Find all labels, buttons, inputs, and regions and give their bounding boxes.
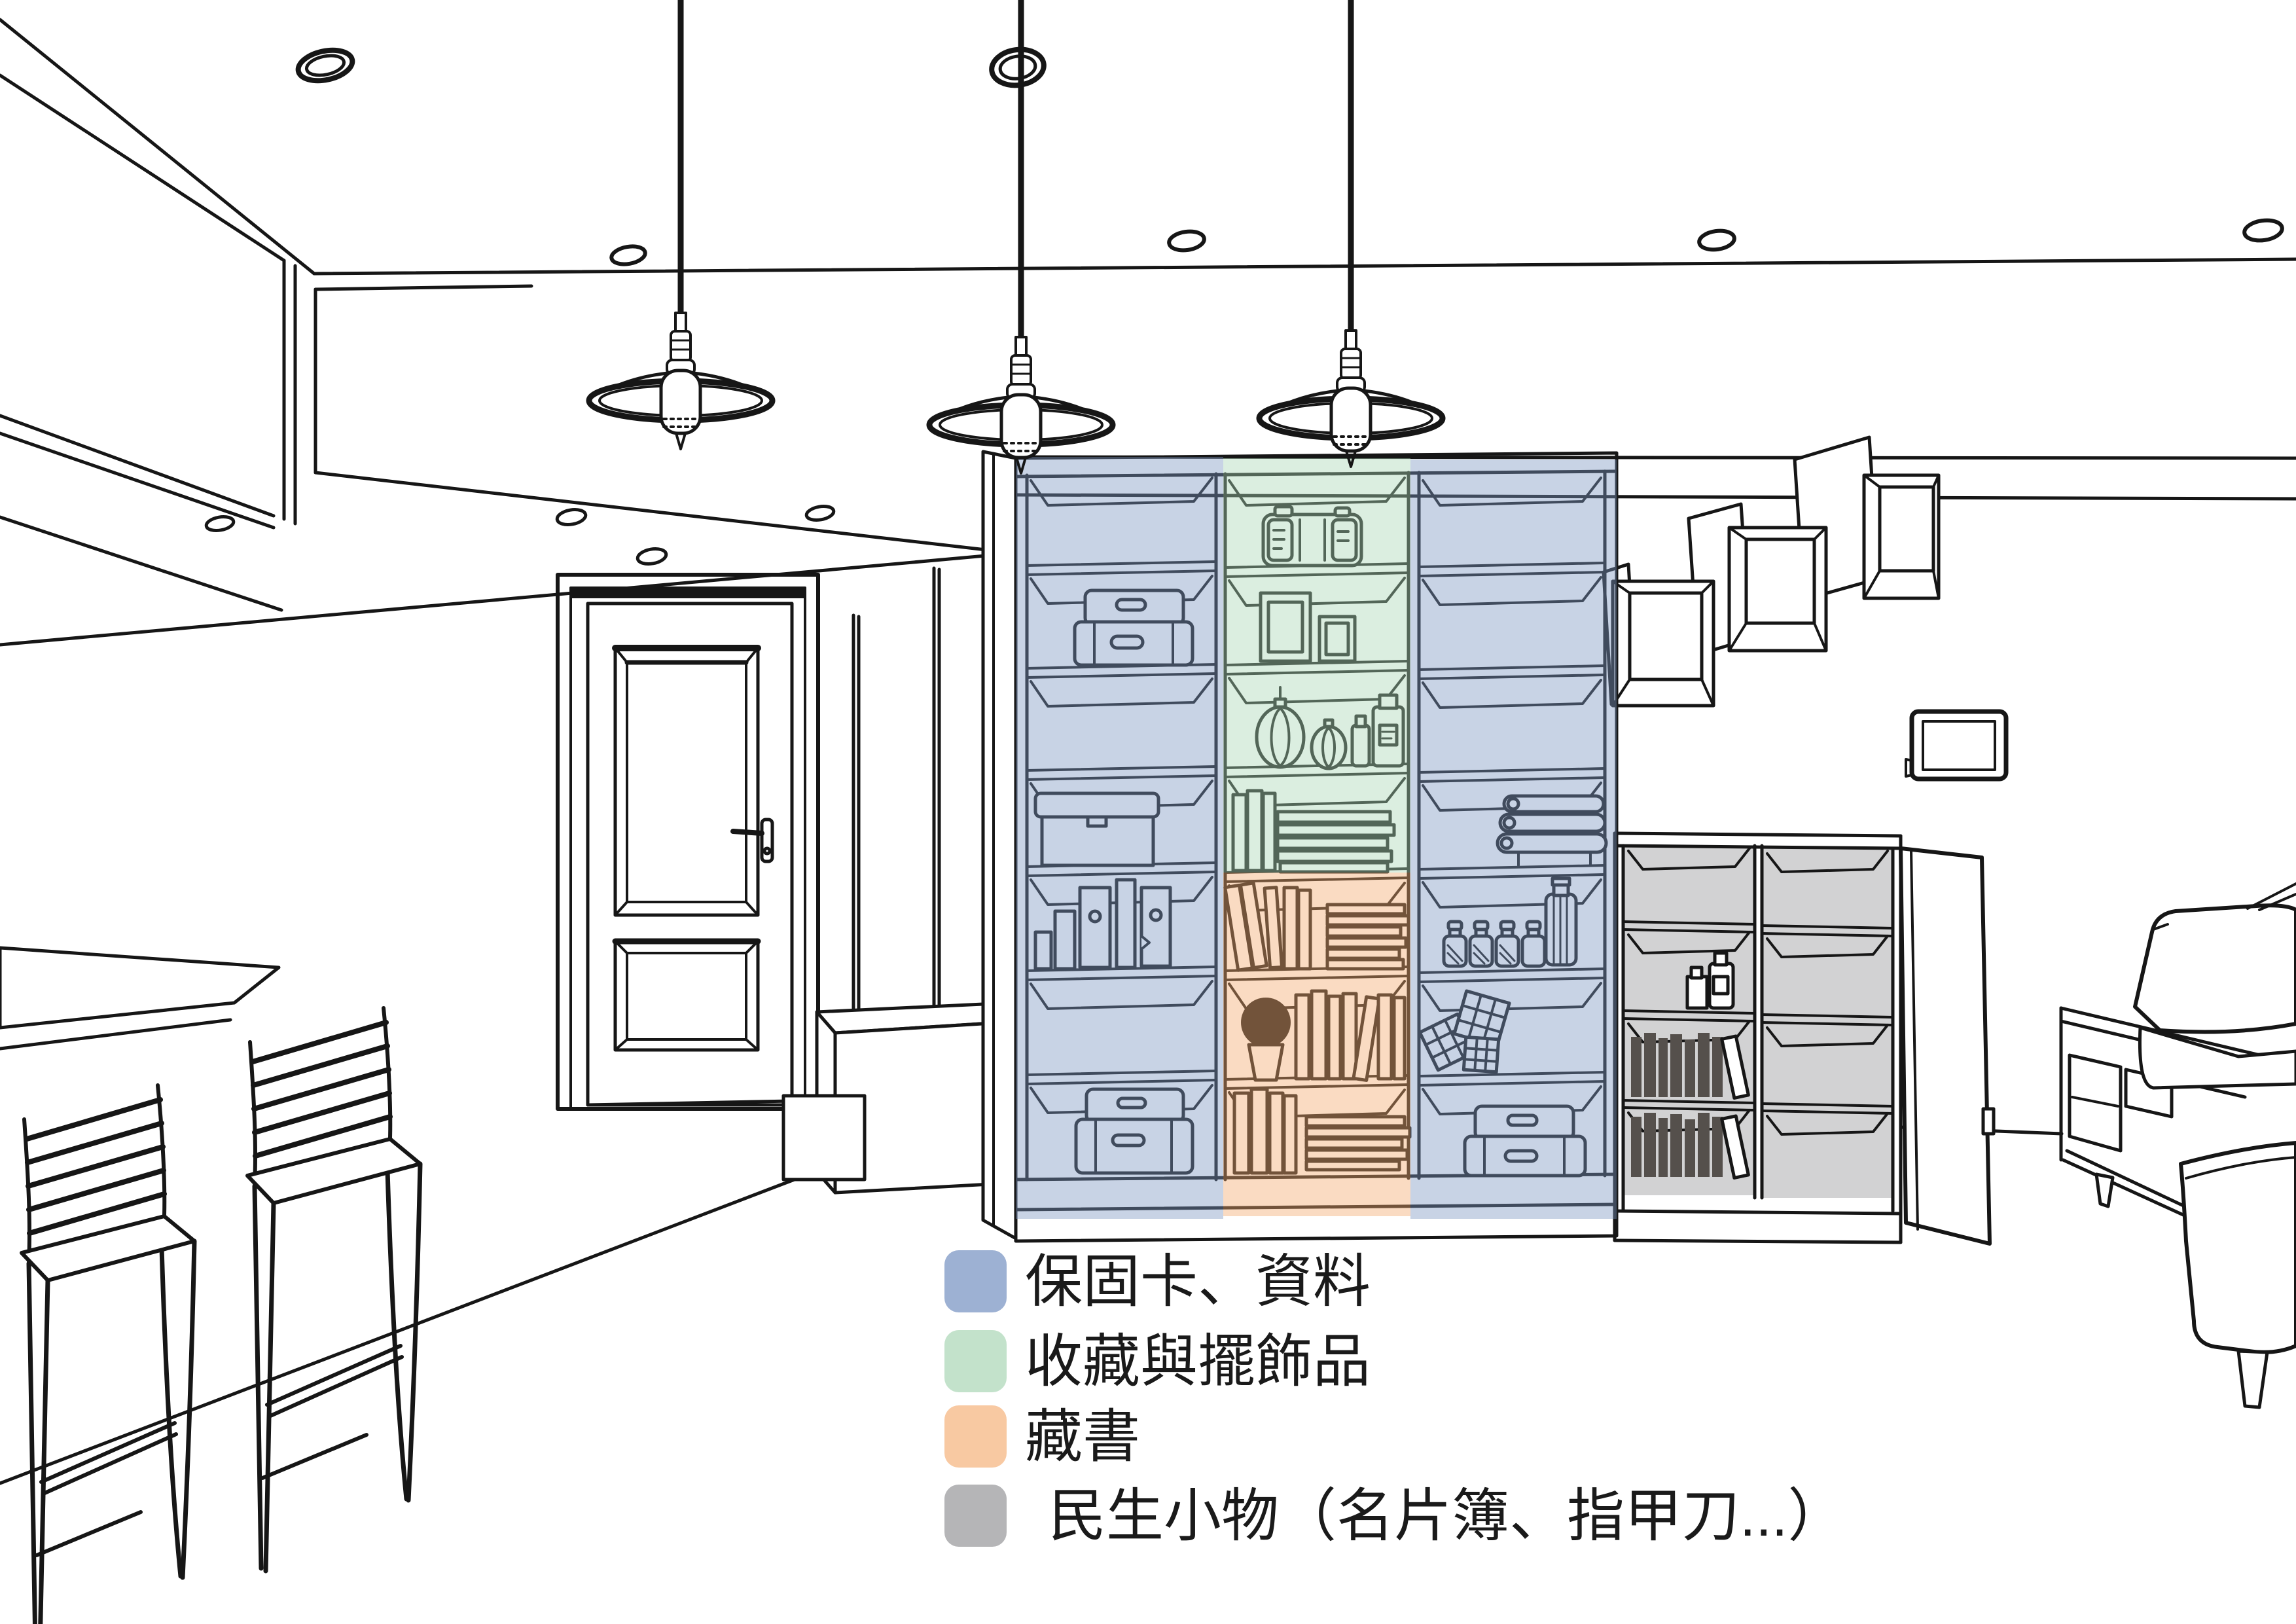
pendant-lamp bbox=[1259, 0, 1443, 467]
sofa bbox=[2135, 884, 2296, 1407]
storage-cabinet bbox=[1615, 833, 1994, 1244]
legend-label: 收藏與擺飾品 bbox=[1025, 1329, 1371, 1394]
zone-orange-center bbox=[1223, 873, 1410, 1216]
ceiling-corner-line bbox=[0, 20, 314, 274]
pendant-lamp bbox=[589, 0, 772, 449]
bar-counter bbox=[0, 948, 279, 1049]
legend-label: 民生小物（名片簿、指甲刀...） bbox=[1049, 1483, 1845, 1548]
step-box bbox=[783, 1096, 865, 1180]
legend-swatch-blue bbox=[944, 1250, 1007, 1312]
door-upper-panel bbox=[615, 648, 758, 915]
door-head-trim bbox=[571, 588, 805, 598]
sofa-armrest bbox=[2140, 1028, 2296, 1088]
scene-rendering: 保固卡、資料 收藏與擺飾品 藏書 民生小物（名片簿、指甲刀...） bbox=[0, 0, 2296, 1624]
bar-stool-right bbox=[247, 1008, 420, 1571]
tv-cabinet-leg bbox=[2096, 1174, 2113, 1206]
interior-door bbox=[558, 575, 818, 1109]
legend-swatch-green bbox=[944, 1330, 1007, 1392]
zone-blue-left bbox=[1016, 457, 1223, 1219]
stair-box bbox=[1613, 581, 1713, 706]
zone-blue-right bbox=[1410, 460, 1617, 1219]
interior-storage-plan-rendering: 保固卡、資料 收藏與擺飾品 藏書 民生小物（名片簿、指甲刀...） bbox=[0, 0, 2296, 1624]
legend-swatch-orange bbox=[944, 1405, 1007, 1468]
legend-item-book-collection: 藏書 bbox=[944, 1404, 1140, 1469]
sofa-back-cushion bbox=[2135, 905, 2296, 1032]
legend-item-collectibles-decor: 收藏與擺飾品 bbox=[944, 1329, 1371, 1394]
sofa-leg bbox=[2238, 1351, 2267, 1407]
legend-item-daily-small-items: 民生小物（名片簿、指甲刀...） bbox=[944, 1483, 1845, 1548]
downlight-icon bbox=[610, 218, 2284, 266]
stool-back-slats bbox=[253, 1022, 390, 1156]
pendant-lamp bbox=[929, 0, 1113, 473]
zone-green-center bbox=[1223, 458, 1410, 873]
legend-item-warranty-docs: 保固卡、資料 bbox=[944, 1249, 1371, 1314]
cabinet-books-row bbox=[1631, 1033, 1723, 1097]
bookshelf-open-door bbox=[983, 452, 1016, 1238]
cabinet-open-door bbox=[1901, 848, 1994, 1244]
kitchen-upper-cabinets bbox=[0, 75, 1014, 610]
stair-box bbox=[1864, 475, 1939, 598]
stair-display-boxes bbox=[1604, 437, 1939, 706]
legend-label: 藏書 bbox=[1025, 1404, 1140, 1469]
cabinet-door-handle bbox=[1983, 1109, 1994, 1134]
legend-label: 保固卡、資料 bbox=[1025, 1249, 1371, 1314]
stair-box bbox=[1729, 528, 1826, 651]
zone-overlays bbox=[1016, 457, 1617, 1219]
soffit-downlight-icon bbox=[206, 505, 835, 566]
door-lower-panel bbox=[615, 941, 758, 1050]
pendant-lamps bbox=[589, 0, 1443, 473]
legend-swatch-gray bbox=[944, 1485, 1007, 1547]
cabinet-books-row bbox=[1631, 1113, 1723, 1177]
legend: 保固卡、資料 收藏與擺飾品 藏書 民生小物（名片簿、指甲刀...） bbox=[944, 1249, 1845, 1548]
door-handle bbox=[733, 820, 772, 861]
bench bbox=[783, 1004, 1003, 1193]
recessed-light-icon bbox=[295, 46, 1046, 89]
bar-stool-left bbox=[22, 1085, 194, 1624]
wall-panel bbox=[1906, 712, 2006, 779]
hallway-walls bbox=[853, 568, 939, 1019]
